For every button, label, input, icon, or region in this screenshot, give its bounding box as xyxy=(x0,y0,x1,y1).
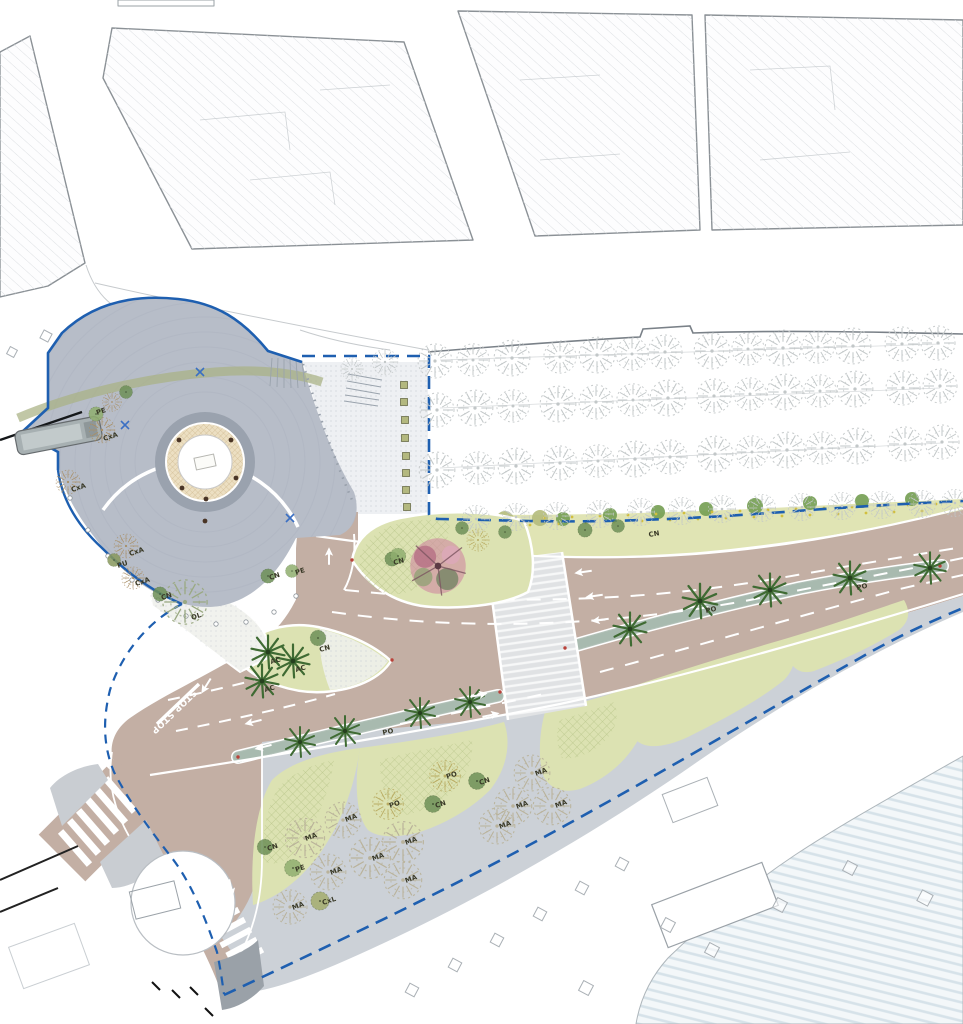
flower-speckle xyxy=(557,523,560,526)
flower-speckle xyxy=(809,514,812,517)
flower-speckle xyxy=(725,517,728,520)
ghost-square xyxy=(40,330,52,342)
existing-kiosk-circle xyxy=(129,851,235,955)
flower-speckle xyxy=(655,513,658,516)
flower-speckle xyxy=(711,511,714,514)
tree-sketch xyxy=(457,390,493,426)
tree-sketch xyxy=(734,378,766,410)
tree-sketch xyxy=(804,375,836,407)
planter-square xyxy=(403,470,410,477)
flower-speckle xyxy=(571,516,574,519)
flower-speckle xyxy=(893,511,896,514)
bush xyxy=(699,502,713,516)
bush xyxy=(651,505,665,519)
plaza-light xyxy=(272,610,276,614)
flower-speckle xyxy=(683,512,686,515)
flower-speckle xyxy=(739,510,742,513)
marker-dot xyxy=(563,646,566,649)
flower-speckle xyxy=(921,510,924,513)
flower-speckle xyxy=(837,513,840,516)
planter-square xyxy=(401,382,408,389)
tree-sketch xyxy=(921,326,955,360)
flower-speckle xyxy=(641,520,644,523)
tree-sketch xyxy=(802,331,834,363)
ghost-square xyxy=(615,857,629,871)
tree-alignment-lines xyxy=(440,344,942,468)
marker-dot xyxy=(236,755,239,758)
planter-square xyxy=(401,399,408,406)
ghost-square xyxy=(405,983,419,997)
tree-sketch xyxy=(462,452,494,484)
flower-speckle xyxy=(627,514,630,517)
flower-speckle xyxy=(753,516,756,519)
planter-square xyxy=(403,453,410,460)
building-block xyxy=(0,36,85,297)
tree-grid-court xyxy=(428,326,963,468)
tree-sketch xyxy=(839,428,875,464)
flower-speckle xyxy=(851,506,854,509)
rooftop-outline xyxy=(118,0,214,6)
ghost-square xyxy=(490,933,504,947)
tree-sketch xyxy=(806,432,838,464)
survey-ticks xyxy=(152,982,213,1016)
tree-sketch xyxy=(697,379,731,413)
marker-dot xyxy=(350,558,353,561)
plaza-light xyxy=(244,620,248,624)
bush xyxy=(803,496,817,510)
planter-square xyxy=(403,487,410,494)
planter-square xyxy=(402,417,409,424)
ghost-square xyxy=(575,881,589,895)
planter-square xyxy=(404,504,411,511)
plaza-light xyxy=(156,598,160,602)
flower-speckle xyxy=(529,524,532,527)
tree-sketch xyxy=(837,371,873,407)
plaza-light xyxy=(214,622,218,626)
ghost-square xyxy=(7,347,18,358)
marker-dot xyxy=(938,564,941,567)
ghost-square xyxy=(533,907,547,921)
tree-sketch xyxy=(498,448,534,484)
flower-speckle xyxy=(935,503,938,506)
marker-dot xyxy=(390,658,393,661)
tree-sketch xyxy=(765,330,801,366)
court-top-edge xyxy=(428,326,963,352)
plaza-light xyxy=(106,554,110,558)
bush xyxy=(747,498,763,514)
flower-speckle xyxy=(599,515,602,518)
ghost-square xyxy=(579,981,594,996)
plaza-light xyxy=(68,496,72,500)
tree-sketch xyxy=(648,335,682,369)
bush xyxy=(532,510,548,526)
tree-sketch xyxy=(497,390,529,422)
plaza-light xyxy=(294,594,298,598)
flower-speckle xyxy=(865,512,868,515)
flower-speckle xyxy=(767,509,770,512)
planter-square xyxy=(402,435,409,442)
marker-dot xyxy=(498,690,501,693)
plaza-light xyxy=(86,528,90,532)
building-block xyxy=(458,11,700,236)
plaza-light xyxy=(184,614,188,618)
flower-speckle xyxy=(781,515,784,518)
tree-sketch xyxy=(544,341,576,373)
building-block xyxy=(103,28,473,249)
site-plan-page: STOP STOP xyxy=(0,0,963,1024)
tree-sketch xyxy=(923,369,957,403)
ghost-square xyxy=(448,958,462,972)
tree-sketch xyxy=(767,374,803,410)
tree-sketch xyxy=(886,371,920,405)
site-plan-drawing: STOP STOP xyxy=(0,0,963,1024)
existing-beach-area xyxy=(636,756,963,1024)
tree-sketch xyxy=(925,425,959,459)
faint-footprint xyxy=(9,923,90,988)
building-block xyxy=(705,15,963,230)
tree-sketch xyxy=(732,333,764,365)
flower-speckle xyxy=(543,517,546,520)
